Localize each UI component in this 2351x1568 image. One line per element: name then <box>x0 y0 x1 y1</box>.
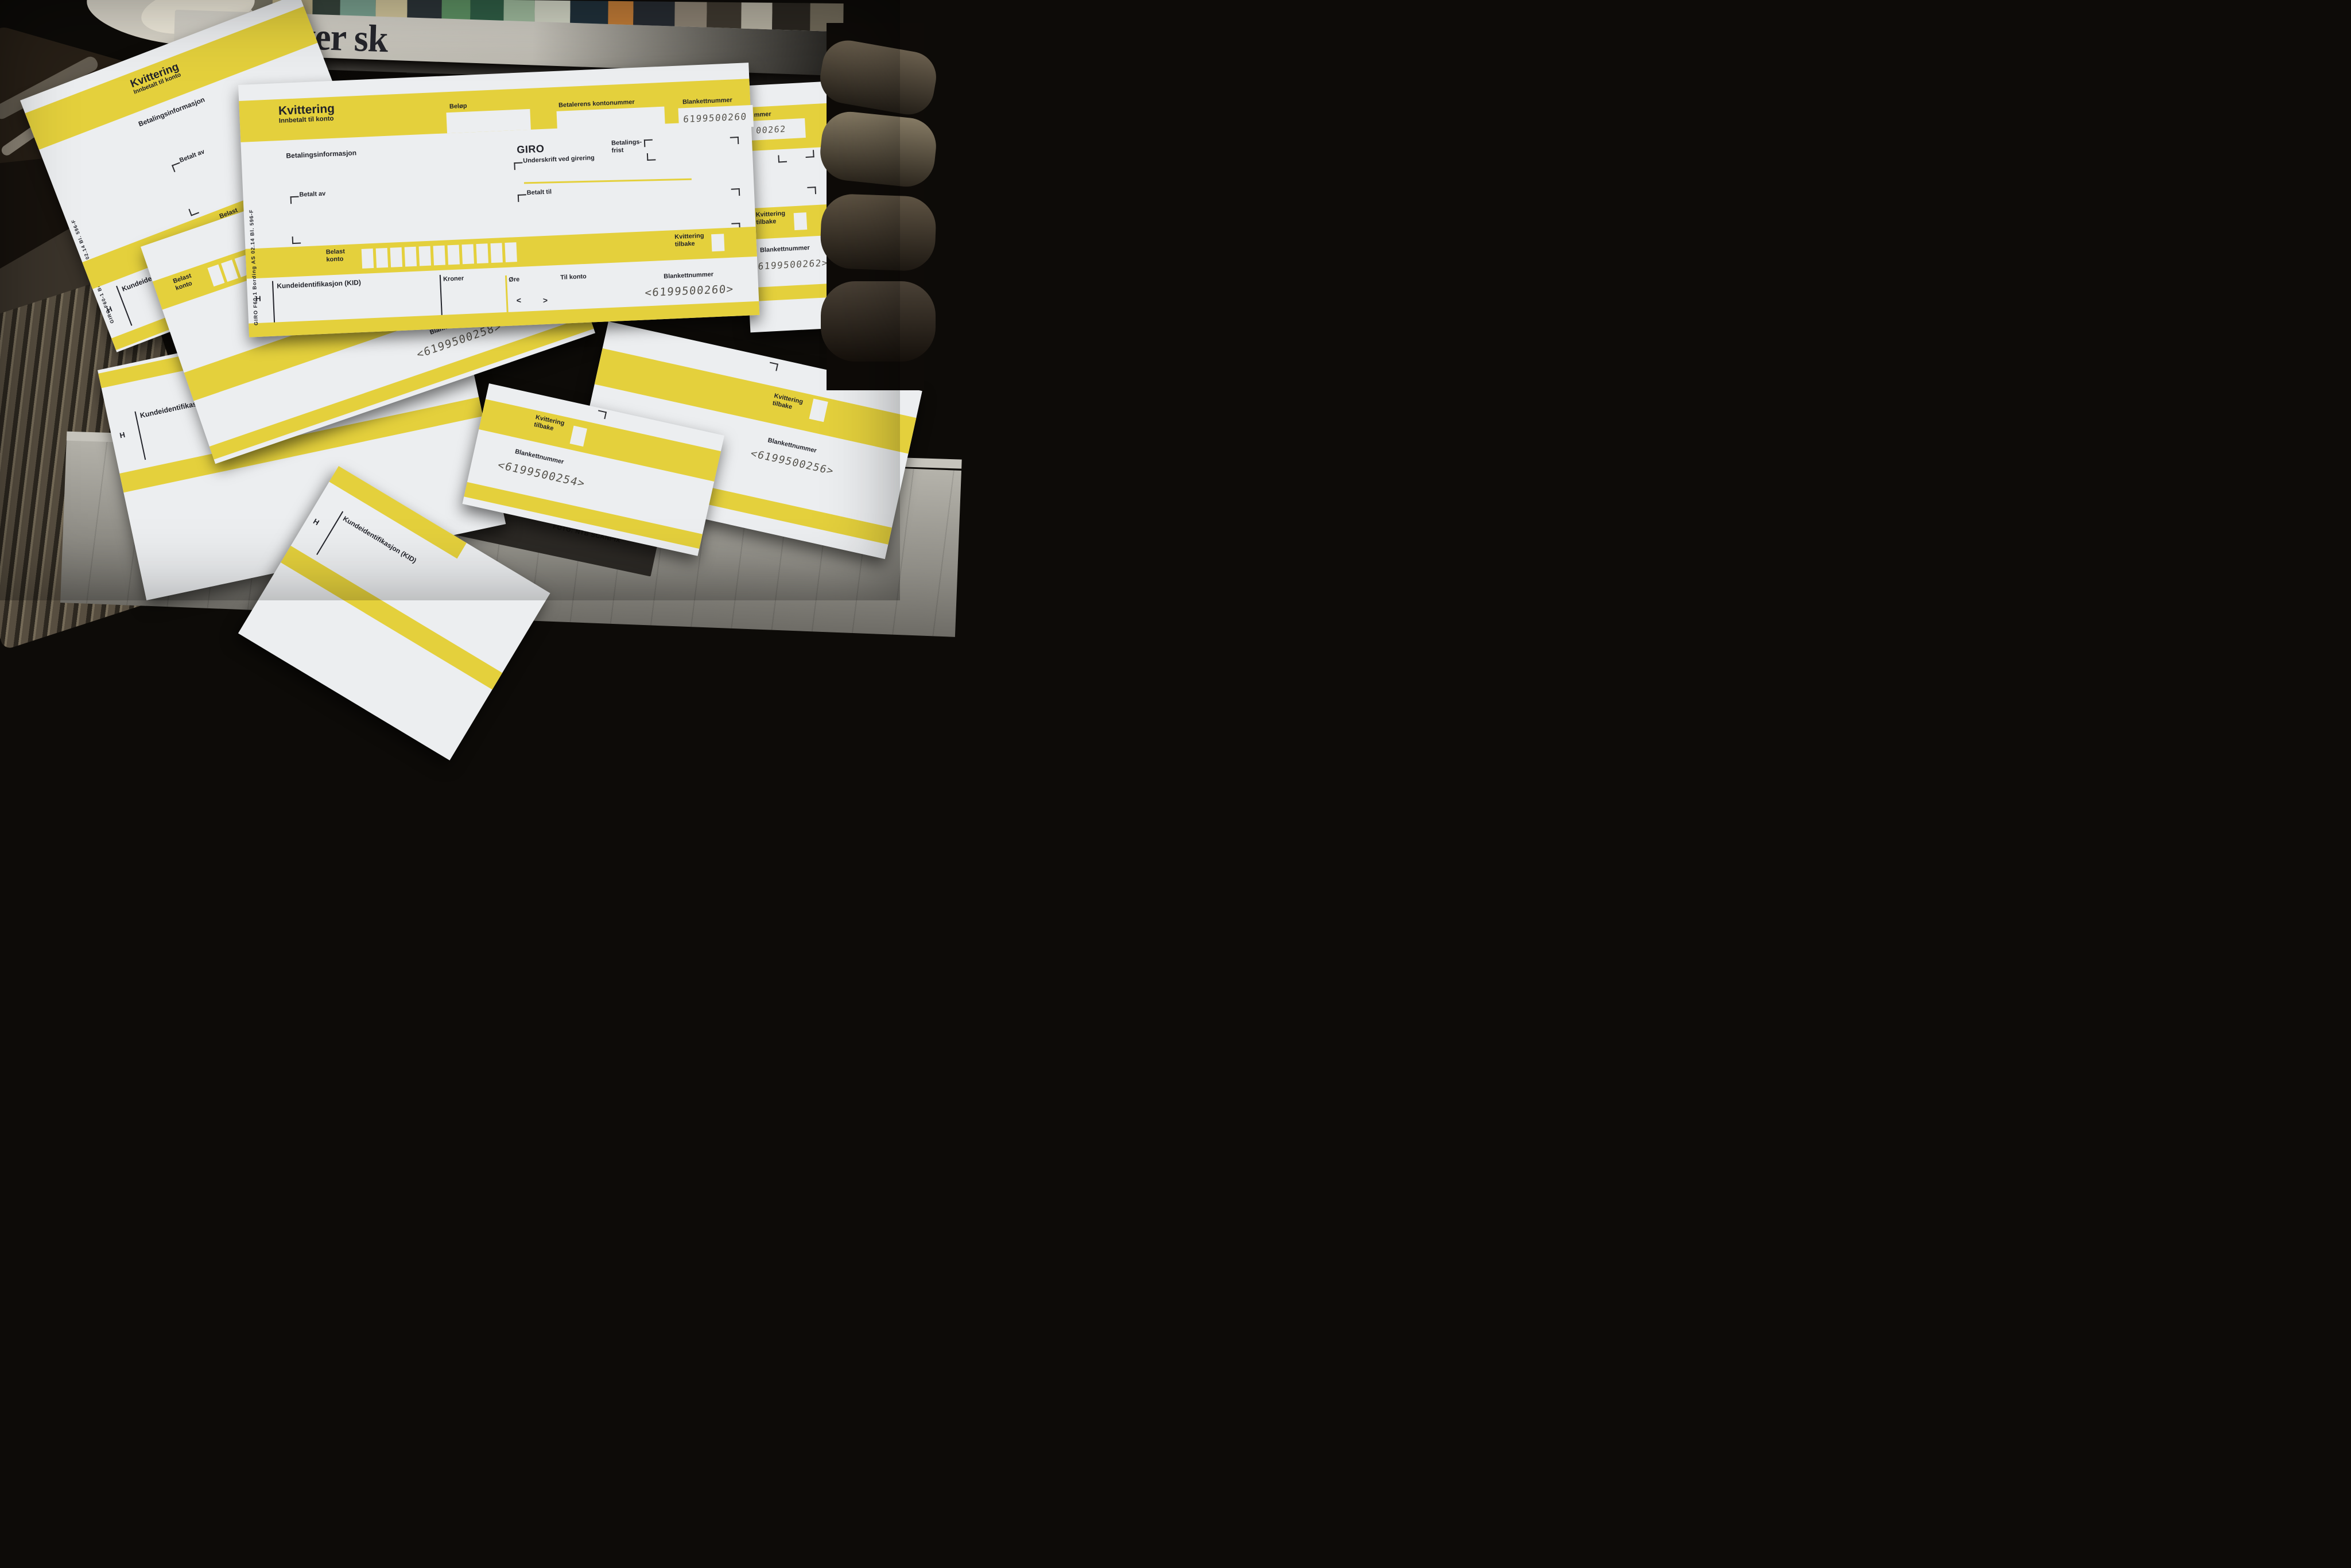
newspaper-roll <box>816 36 940 118</box>
corner-mark <box>647 153 656 161</box>
corner-mark <box>778 155 787 163</box>
receipt-line1: Kvittering <box>674 232 704 241</box>
newspaper-roll <box>820 193 937 272</box>
form-number-ocr: <6199500260> <box>645 283 734 300</box>
title-text: Kvittering <box>278 103 335 117</box>
digit-box <box>405 247 417 267</box>
h-marker: H <box>119 430 126 440</box>
digit-box <box>390 247 402 267</box>
receipt-line2: tilbake <box>756 218 786 227</box>
corner-mark <box>769 362 778 371</box>
form-number-ocr: <6199500256> <box>749 448 836 478</box>
corner-mark <box>292 236 301 244</box>
kroner-divider-line <box>440 275 443 315</box>
debit-account-label: Belastkonto <box>326 248 346 263</box>
to-account-label: Til konto <box>560 273 587 282</box>
receipt-checkbox <box>794 212 808 230</box>
signature-label: Underskrift ved girering <box>523 154 595 165</box>
form-number-label-partial: mmer <box>754 111 771 119</box>
digit-box <box>490 243 502 263</box>
corner-mark <box>805 150 814 158</box>
rolled-newspapers-right <box>827 23 924 390</box>
form-number-value-partial: 00262 <box>756 124 787 136</box>
digit-box <box>362 249 374 269</box>
chevron-left: < <box>516 296 521 305</box>
lower-band <box>281 546 502 690</box>
form-print-code: GIRO F60-1 Bording AS 02.14 Bl. 596-F <box>246 159 259 325</box>
newspaper-roll <box>821 281 936 362</box>
corner-mark <box>730 137 739 145</box>
digit-box <box>376 248 388 268</box>
corner-mark <box>807 187 816 195</box>
paid-by-label: Betalt av <box>179 148 205 165</box>
h-marker: H <box>312 517 321 527</box>
corner-mark <box>514 162 523 170</box>
receipt-return-label: Kvitteringtilbake <box>674 232 704 249</box>
kid-divider-line <box>272 281 275 325</box>
due-line2: frist <box>611 146 642 154</box>
giro-slip-main: KvitteringInnbetalt til konto Beløp Beta… <box>238 63 759 337</box>
paid-to-label: Betalt til <box>526 188 552 197</box>
payer-account-box <box>557 107 666 134</box>
form-number-ocr: <6199500254> <box>496 459 587 490</box>
debit-line2: konto <box>326 255 346 263</box>
slip-title: KvitteringInnbetalt til konto <box>278 103 335 125</box>
payment-info-label: Betalingsinformasjon <box>286 149 356 160</box>
signature-line <box>524 178 692 184</box>
digit-box <box>505 242 517 262</box>
kid-label: Kundeidentifikasjon (KID) <box>277 278 361 290</box>
corner-mark <box>644 139 653 148</box>
newspaper-roll <box>817 109 938 189</box>
due-date-label: Betalings-frist <box>611 138 642 154</box>
digit-box <box>476 243 488 263</box>
amount-box <box>446 109 530 133</box>
amount-label: Beløp <box>449 103 467 111</box>
due-line1: Betalings- <box>611 138 642 147</box>
digit-box <box>419 246 431 266</box>
digit-box <box>433 246 445 266</box>
corner-mark <box>597 410 607 419</box>
ore-label: Øre <box>509 276 520 284</box>
paid-by-label: Betalt av <box>299 191 325 199</box>
form-number-label: Blankettnummer <box>760 244 810 254</box>
digit-box <box>448 244 460 265</box>
chevron-right: > <box>543 296 548 305</box>
receipt-checkbox <box>711 234 724 251</box>
receipt-line2: tilbake <box>675 240 705 249</box>
kroner-label: Kroner <box>443 275 464 284</box>
ore-divider-line <box>505 275 508 312</box>
corner-mark <box>290 196 300 204</box>
corner-mark <box>518 194 527 202</box>
form-number-label-bottom: Blankettnummer <box>664 271 713 281</box>
giro-word: GIRO <box>517 143 545 156</box>
photo-of-giro-slips-on-newspapers: { "colors": { "giro_yellow": "#e4d03c", … <box>0 0 900 600</box>
corner-mark <box>188 206 199 216</box>
digit-box <box>462 244 474 264</box>
receipt-return-label: Kvitteringtilbake <box>755 210 786 227</box>
form-number-ocr: <6199500262> <box>751 257 828 272</box>
kid-divider-line <box>316 511 343 555</box>
corner-mark <box>731 188 740 196</box>
